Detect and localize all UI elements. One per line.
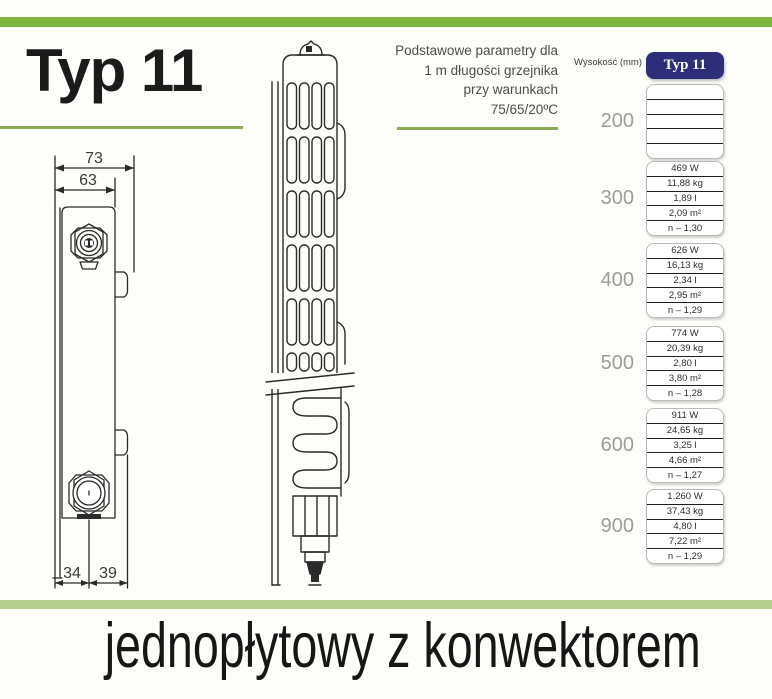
dimension-label-39: 39 xyxy=(99,565,117,582)
value-block: 626 W 16,13 kg 2,34 l 2,95 m² n – 1,29 xyxy=(646,243,724,318)
footer-caption: jednopłytowy z konwektorem xyxy=(0,610,772,682)
value-cell: 4,66 m² xyxy=(647,452,723,467)
table-type-header: Typ 11 xyxy=(646,52,724,79)
value-cell: 2,95 m² xyxy=(647,287,723,302)
value-block: 469 W 11,88 kg 1,89 l 2,09 m² n – 1,30 xyxy=(646,161,724,236)
value-cell: 774 W xyxy=(647,327,723,341)
value-cell: 20,39 kg xyxy=(647,341,723,356)
height-label: 600 xyxy=(566,408,634,483)
value-cell xyxy=(647,99,723,114)
value-cell xyxy=(647,85,723,99)
value-cell xyxy=(647,143,723,158)
footer-caption-text: jednopłytowy z konwektorem xyxy=(105,610,701,682)
value-cell: 16,13 kg xyxy=(647,258,723,273)
dimension-label-34: 34 xyxy=(63,565,81,582)
table-group-500: 500 774 W 20,39 kg 2,80 l 3,80 m² n – 1,… xyxy=(566,326,724,401)
parameters-note: Podstawowe parametry dla 1 m długości gr… xyxy=(352,41,558,119)
value-block: 1.260 W 37,43 kg 4,80 l 7,22 m² n – 1,29 xyxy=(646,489,724,564)
datasheet-page: Typ 11 Podstawowe parametry dla 1 m dług… xyxy=(0,0,772,699)
value-cell: 2,09 m² xyxy=(647,205,723,220)
value-cell: n – 1,30 xyxy=(647,220,723,235)
value-cell xyxy=(647,114,723,129)
value-cell: 2,34 l xyxy=(647,273,723,288)
value-block: 911 W 24,65 kg 3,25 l 4,66 m² n – 1,27 xyxy=(646,408,724,483)
top-accent-bar xyxy=(0,17,772,27)
value-cell: 3,80 m² xyxy=(647,370,723,385)
radiator-front-section-drawing xyxy=(253,36,365,596)
value-cell: 3,25 l xyxy=(647,438,723,453)
table-height-header: Wysokość (mm) xyxy=(552,57,642,68)
value-cell: 4,80 l xyxy=(647,519,723,534)
dimension-label-73: 73 xyxy=(85,150,103,167)
value-cell: 1,89 l xyxy=(647,191,723,206)
value-cell xyxy=(647,128,723,143)
note-underline xyxy=(397,127,558,130)
value-cell: 469 W xyxy=(647,162,723,176)
value-cell: 1.260 W xyxy=(647,490,723,504)
value-block xyxy=(646,84,724,159)
note-line-1: Podstawowe parametry dla xyxy=(352,41,558,61)
value-cell: 11,88 kg xyxy=(647,176,723,191)
value-cell: n – 1,29 xyxy=(647,548,723,563)
note-line-2: 1 m długości grzejnika xyxy=(352,61,558,81)
value-cell: n – 1,28 xyxy=(647,385,723,400)
footer-accent-band xyxy=(0,600,772,609)
height-label: 400 xyxy=(566,243,634,318)
page-title: Typ 11 xyxy=(26,36,202,105)
table-group-900: 900 1.260 W 37,43 kg 4,80 l 7,22 m² n – … xyxy=(566,489,724,564)
value-cell: n – 1,29 xyxy=(647,302,723,317)
height-label: 300 xyxy=(566,161,634,236)
table-group-400: 400 626 W 16,13 kg 2,34 l 2,95 m² n – 1,… xyxy=(566,243,724,318)
note-line-4: 75/65/20ºC xyxy=(352,100,558,120)
height-label: 900 xyxy=(566,489,634,564)
dimension-label-63: 63 xyxy=(79,172,97,189)
value-cell: 626 W xyxy=(647,244,723,258)
note-line-3: przy warunkach xyxy=(352,80,558,100)
value-cell: 37,43 kg xyxy=(647,504,723,519)
height-label: 200 xyxy=(566,84,634,159)
value-cell: 911 W xyxy=(647,409,723,423)
value-block: 774 W 20,39 kg 2,80 l 3,80 m² n – 1,28 xyxy=(646,326,724,401)
radiator-side-view-drawing: 73 63 34 39 xyxy=(45,146,145,594)
height-label: 500 xyxy=(566,326,634,401)
value-cell: 7,22 m² xyxy=(647,533,723,548)
title-underline xyxy=(0,126,243,129)
table-group-300: 300 469 W 11,88 kg 1,89 l 2,09 m² n – 1,… xyxy=(566,161,724,236)
value-cell: 2,80 l xyxy=(647,356,723,371)
table-group-600: 600 911 W 24,65 kg 3,25 l 4,66 m² n – 1,… xyxy=(566,408,724,483)
value-cell: 24,65 kg xyxy=(647,423,723,438)
value-cell: n – 1,27 xyxy=(647,467,723,482)
table-group-200: 200 xyxy=(566,84,724,159)
